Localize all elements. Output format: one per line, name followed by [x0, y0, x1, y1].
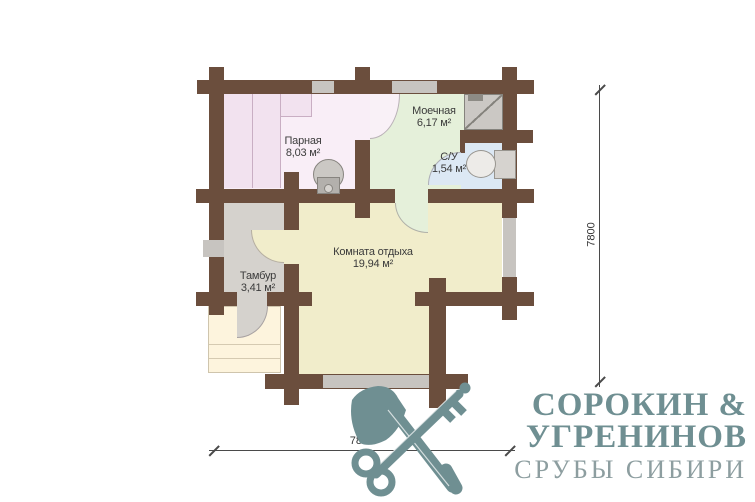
porch-step-line [209, 344, 280, 345]
room-area: 6,17 м² [384, 117, 484, 129]
wall-tambur-upper [284, 172, 299, 230]
window-top-2 [392, 81, 437, 93]
exit-door-gap [237, 292, 267, 306]
wall-bottom-left-a [196, 292, 237, 306]
wall-parnaya-lower [355, 140, 370, 218]
room-name: Комната отдыха [313, 246, 433, 258]
room-name: Моечная [384, 105, 484, 117]
shower-head-icon [468, 94, 483, 101]
room-area: 1,54 м² [399, 163, 499, 175]
porch-step-line [209, 358, 280, 359]
room-area: 19,94 м² [313, 258, 433, 270]
window-left [203, 240, 224, 257]
room-name: С/У [399, 151, 499, 163]
room-komnata-extension-floor [299, 292, 429, 374]
room-label-tambur: Тамбур 3,41 м² [208, 270, 308, 294]
logo-text: СОРОКИН & УГРЕНИНОВ СРУБЫ СИБИРИ [480, 389, 747, 484]
tambur-door-gap [284, 230, 299, 264]
sauna-bench [281, 94, 312, 117]
sauna-bench [224, 94, 253, 188]
stove-door-icon [324, 184, 333, 193]
room-label-su: С/У 1,54 м² [399, 151, 499, 175]
room-name: Парная [253, 135, 353, 147]
dimension-label-right: 7800 [586, 205, 599, 265]
moechnaya-door-gap [395, 189, 428, 203]
wall-bottom-left-b [267, 292, 312, 306]
logo-line1: СОРОКИН & [480, 389, 747, 421]
room-label-moechnaya: Моечная 6,17 м² [384, 105, 484, 129]
room-label-komnata: Комната отдыха 19,94 м² [313, 246, 433, 270]
window-right [503, 218, 516, 277]
room-name: Тамбур [208, 270, 308, 282]
wall-mid-right [428, 189, 534, 203]
floor-plan-page: Парная 8,03 м² Моечная 6,17 м² С/У 1,54 … [0, 0, 755, 502]
window-top-1 [312, 81, 334, 93]
room-area: 8,03 м² [253, 147, 353, 159]
dimension-line-right [599, 85, 600, 387]
crossed-axe-and-key-icon [336, 377, 486, 502]
logo-tagline: СРУБЫ СИБИРИ [480, 455, 747, 484]
room-area: 3,41 м² [208, 282, 308, 294]
room-label-parnaya: Парная 8,03 м² [253, 135, 353, 159]
wall-su-top [460, 130, 533, 143]
logo-line2: УГРЕНИНОВ [480, 421, 747, 453]
wall-parnaya-upper [355, 67, 370, 94]
